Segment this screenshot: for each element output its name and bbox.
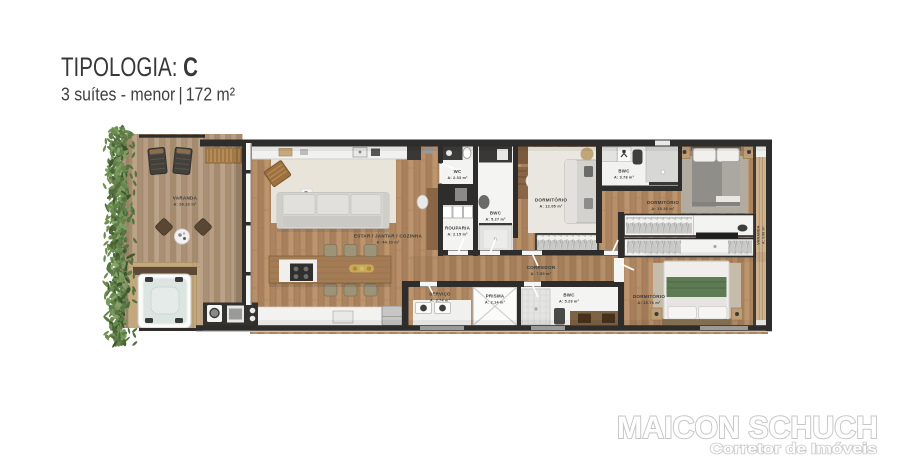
svg-text:A: 44.10 m²: A: 44.10 m² [376,241,399,245]
svg-text:DORMITÓRIO: DORMITÓRIO [647,198,680,205]
svg-text:CORREDOR: CORREDOR [527,265,556,270]
svg-text:A: 7.50 m²: A: 7.50 m² [531,272,552,276]
svg-text:A: 26.22 m²: A: 26.22 m² [173,203,196,207]
svg-text:A: 3.78 m²: A: 3.78 m² [614,176,635,180]
svg-text:BWC: BWC [563,293,575,298]
svg-text:A: 15.26 m²: A: 15.26 m² [651,207,674,211]
svg-text:ROUPARIA: ROUPARIA [445,226,471,231]
svg-text:A: 3.98 m²: A: 3.98 m² [762,226,766,244]
svg-text:A: 3.74 m²: A: 3.74 m² [430,299,451,303]
svg-text:A: 2.14 m²: A: 2.14 m² [485,301,506,305]
svg-text:BWC: BWC [490,211,502,216]
svg-text:WC: WC [454,169,462,174]
svg-text:A: 2.15 m²: A: 2.15 m² [447,233,468,237]
svg-text:DORMITÓRIO: DORMITÓRIO [535,196,568,203]
svg-text:ESTAR / JANTAR / COZINHA: ESTAR / JANTAR / COZINHA [354,234,423,239]
svg-text:3 suítes - menor | 172 m²: 3 suítes - menor | 172 m² [61,84,235,105]
svg-text:A: 15.76 m²: A: 15.76 m² [637,301,660,305]
svg-text:MAICON SCHUCH: MAICON SCHUCH [617,409,878,445]
svg-text:A: 5.27 m²: A: 5.27 m² [485,218,506,222]
svg-text:PRISMA: PRISMA [486,294,505,299]
svg-text:BWC: BWC [618,169,630,174]
svg-text:VARANDA: VARANDA [757,225,761,245]
svg-text:DORMITÓRIO: DORMITÓRIO [633,292,666,299]
svg-text:Corretor de Imóveis: Corretor de Imóveis [710,442,877,458]
svg-text:A: 2.33 m²: A: 2.33 m² [447,176,468,180]
svg-text:VARANDA: VARANDA [173,196,198,201]
svg-text:A: 5.29 m²: A: 5.29 m² [559,300,580,304]
svg-text:SERVIÇO: SERVIÇO [429,292,451,297]
svg-text:A: 12.05 m²: A: 12.05 m² [539,205,562,209]
svg-text:TIPOLOGIA: C: TIPOLOGIA: C [61,52,198,82]
